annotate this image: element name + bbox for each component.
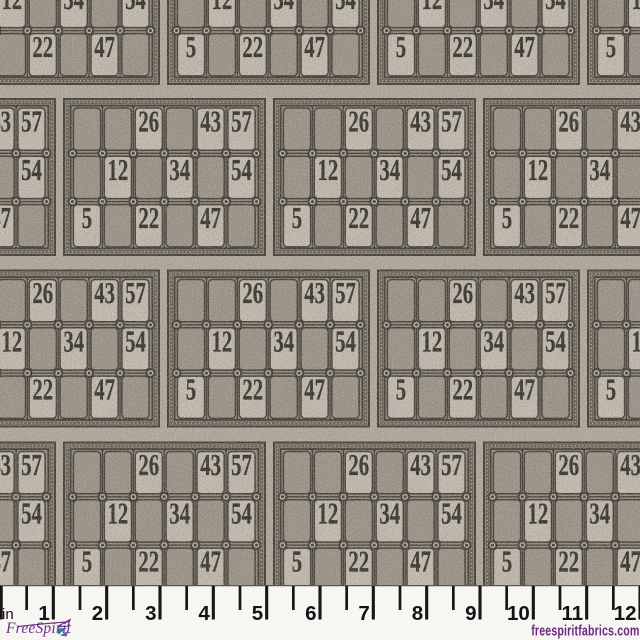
svg-text:6: 6 bbox=[305, 602, 316, 625]
svg-text:3: 3 bbox=[145, 602, 156, 625]
svg-text:9: 9 bbox=[465, 602, 476, 625]
svg-text:4: 4 bbox=[198, 602, 210, 625]
svg-text:5: 5 bbox=[252, 602, 263, 625]
svg-text:8: 8 bbox=[412, 602, 423, 625]
svg-text:7: 7 bbox=[358, 602, 369, 625]
svg-text:2: 2 bbox=[92, 602, 103, 625]
svg-text:freespiritfabrics.com: freespiritfabrics.com bbox=[531, 622, 639, 639]
svg-text:10: 10 bbox=[507, 602, 530, 625]
